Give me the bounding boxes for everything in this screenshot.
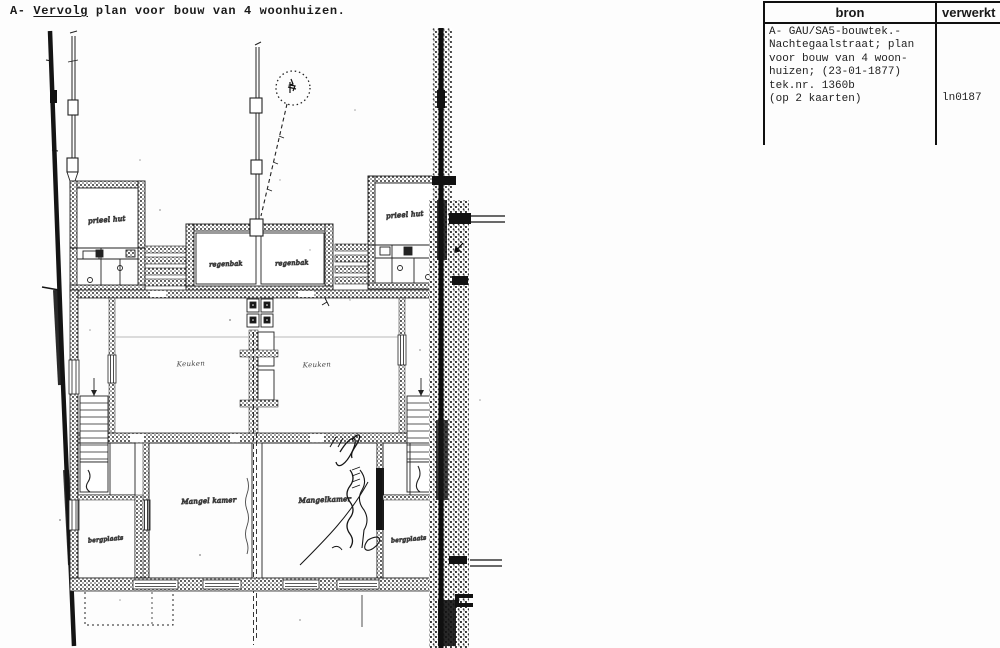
connector-walls-right (335, 244, 368, 284)
column-header-verwerkt: verwerkt (942, 5, 995, 20)
bron-line: huizen; (23-01-1877) (769, 66, 933, 79)
survey-mark-circle (261, 71, 310, 216)
ditch-band-right (429, 28, 505, 648)
bron-line: A- GAU/SA5-bouwtek.- (769, 26, 933, 39)
room-label-keuken-right: Keuken (302, 361, 332, 370)
bron-cell: A- GAU/SA5-bouwtek.- Nachtegaalstraat; p… (769, 26, 933, 106)
chimney-spine (240, 299, 278, 645)
table-column-divider (935, 3, 937, 145)
table-header-rule (765, 22, 1000, 24)
scanned-archive-page: A- Vervolg plan voor bouw van 4 woonhuiz… (0, 0, 1000, 648)
room-label-regenbak-right: regenbak (275, 258, 309, 267)
staircase-left (80, 378, 108, 492)
room-label-regenbak-left: regenbak (209, 259, 243, 268)
verwerkt-cell: ln0187 (942, 92, 982, 104)
room-label-keuken-left: Keuken (176, 360, 206, 369)
connector-walls-left (145, 246, 190, 286)
room-label-bergplaats-left: bergplaats (88, 534, 124, 544)
source-table: bron verwerkt A- GAU/SA5-bouwtek.- Nacht… (763, 1, 1000, 145)
stoop-outline (85, 592, 362, 627)
lower-rooms: bergplaats bergplaats Mangel kamer Mange… (78, 443, 436, 578)
center-fence-line (250, 42, 262, 219)
bron-line: tek.nr. 1360b (769, 80, 933, 93)
room-label-mangel-left: Mangel kamer (180, 496, 237, 506)
vertical-note-squiggle (246, 478, 249, 554)
bron-line: (op 2 kaarten) (769, 93, 933, 106)
left-boundary-line (42, 31, 74, 646)
room-label-mangel-right: Mangelkamer (298, 495, 352, 505)
floor-plan-drawing: prieel hut prieel hut (0, 0, 520, 648)
regenbak-block: regenbak regenbak (186, 219, 333, 292)
garden-room-left: prieel hut (70, 181, 145, 291)
bron-line: voor bouw van 4 woon- (769, 53, 933, 66)
garden-fence-left (67, 31, 78, 182)
column-header-bron: bron (765, 5, 935, 20)
room-label-bergplaats-right: bergplaats (391, 534, 427, 544)
handwritten-scrawl (300, 298, 380, 565)
front-facade (70, 578, 443, 591)
bron-line: Nachtegaalstraat; plan (769, 39, 933, 52)
